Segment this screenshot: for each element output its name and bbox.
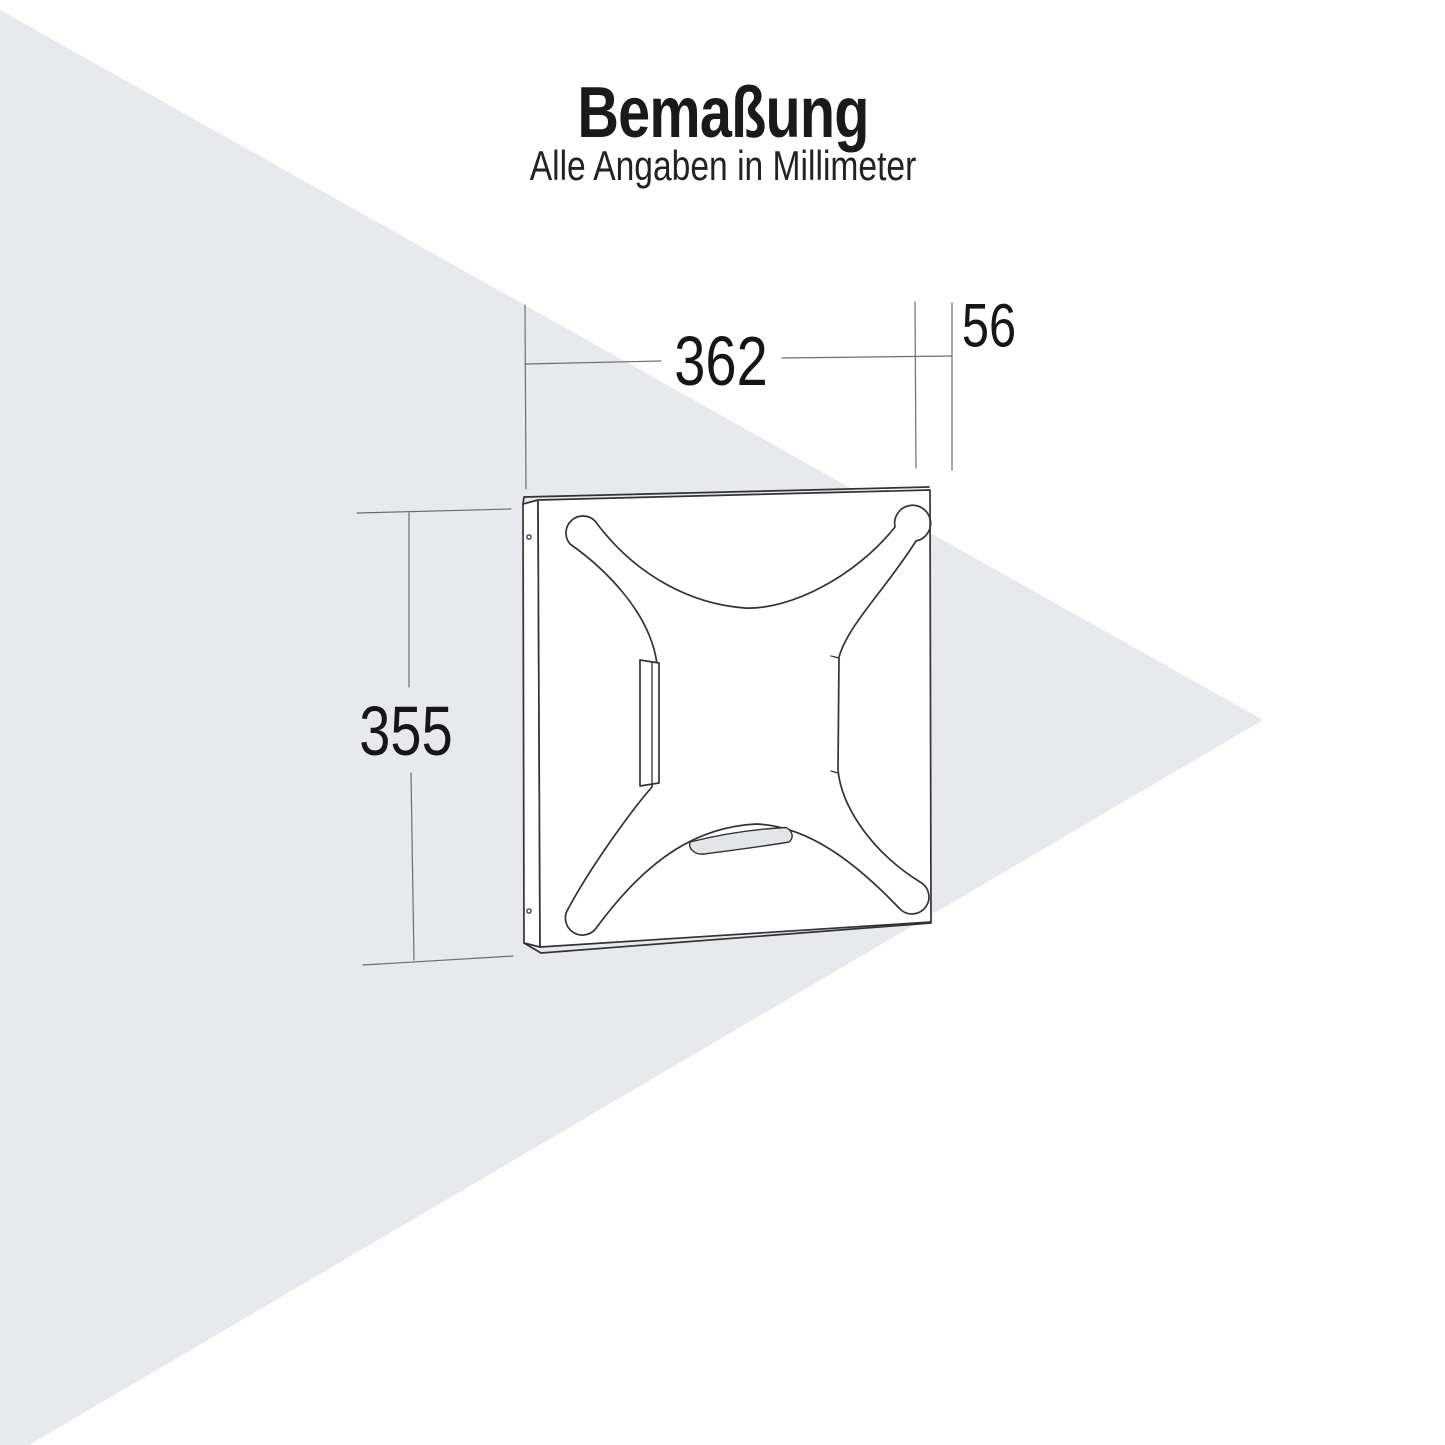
dim-label-width: 362 [674, 326, 767, 396]
page-background: Bemaßung Alle Angaben in Millimeter 362 … [0, 0, 1445, 1445]
dim-label-height: 355 [359, 696, 452, 766]
dimension-drawing [0, 0, 1445, 1445]
clip-bracket [640, 660, 659, 786]
page-title: Bemaßung [577, 77, 868, 149]
witness-line-right-front [915, 302, 916, 468]
panel [523, 487, 931, 953]
page-subtitle: Alle Angaben in Millimeter [530, 145, 917, 187]
panel-front-face [538, 490, 931, 947]
dim-label-depth: 56 [962, 296, 1016, 357]
